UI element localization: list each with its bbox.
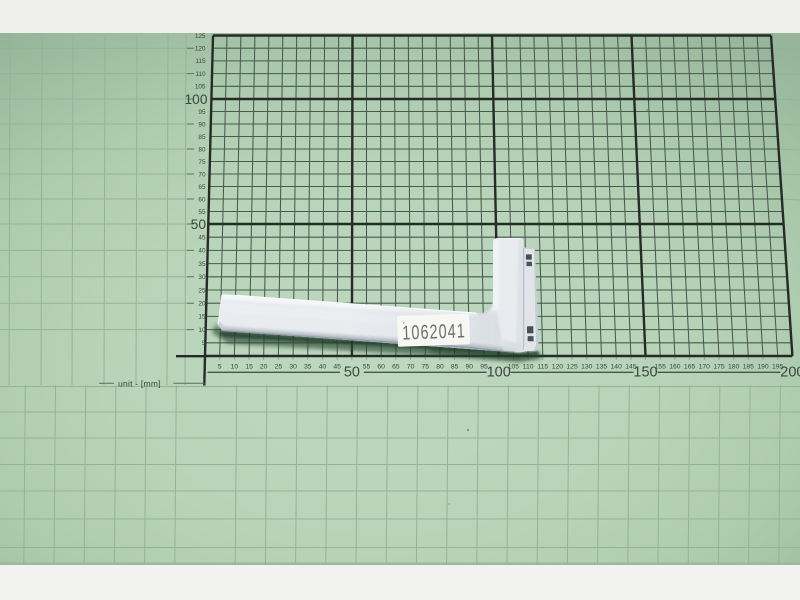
svg-text:75: 75 [198, 159, 206, 166]
svg-text:1062041: 1062041 [402, 319, 466, 344]
svg-text:15: 15 [198, 314, 206, 321]
svg-text:100: 100 [184, 92, 207, 107]
svg-text:25: 25 [198, 287, 206, 294]
svg-text:100: 100 [487, 365, 511, 381]
svg-text:120: 120 [195, 46, 206, 53]
svg-text:110: 110 [195, 71, 206, 78]
svg-text:90: 90 [198, 121, 206, 128]
svg-text:30: 30 [198, 274, 206, 281]
svg-text:65: 65 [198, 184, 206, 191]
svg-text:5: 5 [202, 340, 206, 347]
svg-text:115: 115 [195, 58, 206, 65]
svg-text:45: 45 [333, 363, 341, 370]
svg-text:70: 70 [198, 171, 206, 178]
svg-text:65: 65 [392, 363, 400, 370]
svg-text:50: 50 [344, 365, 360, 381]
svg-text:190: 190 [757, 363, 769, 370]
svg-text:45: 45 [198, 235, 206, 242]
svg-text:10: 10 [198, 327, 206, 334]
svg-text:40: 40 [319, 363, 327, 370]
svg-text:125: 125 [566, 363, 578, 370]
svg-text:30: 30 [289, 363, 297, 370]
svg-text:105: 105 [195, 84, 206, 91]
svg-text:180: 180 [728, 363, 740, 370]
svg-text:130: 130 [581, 363, 593, 370]
svg-text:10: 10 [231, 363, 239, 370]
svg-text:unit - [mm]: unit - [mm] [118, 378, 161, 388]
svg-text:55: 55 [198, 209, 206, 216]
svg-text:50: 50 [191, 217, 207, 232]
svg-text:20: 20 [260, 363, 268, 370]
svg-text:140: 140 [611, 363, 623, 370]
svg-text:15: 15 [245, 363, 253, 370]
svg-text:165: 165 [684, 363, 696, 370]
svg-text:80: 80 [198, 146, 206, 153]
svg-text:5: 5 [218, 363, 222, 370]
svg-text:85: 85 [198, 134, 206, 141]
svg-text:95: 95 [198, 109, 206, 116]
svg-text:160: 160 [669, 363, 681, 370]
svg-text:125: 125 [195, 33, 206, 40]
svg-text:75: 75 [422, 363, 430, 370]
svg-text:55: 55 [363, 363, 371, 370]
svg-text:35: 35 [304, 363, 312, 370]
svg-text:150: 150 [633, 365, 657, 381]
svg-text:40: 40 [198, 248, 206, 255]
svg-text:20: 20 [198, 301, 206, 308]
svg-text:135: 135 [596, 363, 608, 370]
svg-text:85: 85 [451, 363, 459, 370]
svg-text:60: 60 [377, 363, 385, 370]
svg-text:60: 60 [198, 196, 206, 203]
svg-text:70: 70 [407, 363, 415, 370]
svg-text:170: 170 [699, 363, 711, 370]
svg-text:200: 200 [780, 365, 800, 381]
svg-text:25: 25 [275, 363, 283, 370]
svg-text:115: 115 [537, 363, 548, 370]
svg-text:175: 175 [713, 363, 725, 370]
svg-text:120: 120 [552, 363, 564, 370]
svg-text:185: 185 [743, 363, 755, 370]
svg-text:80: 80 [436, 363, 444, 370]
svg-text:110: 110 [523, 363, 534, 370]
svg-text:35: 35 [198, 261, 206, 268]
svg-text:90: 90 [466, 363, 474, 370]
